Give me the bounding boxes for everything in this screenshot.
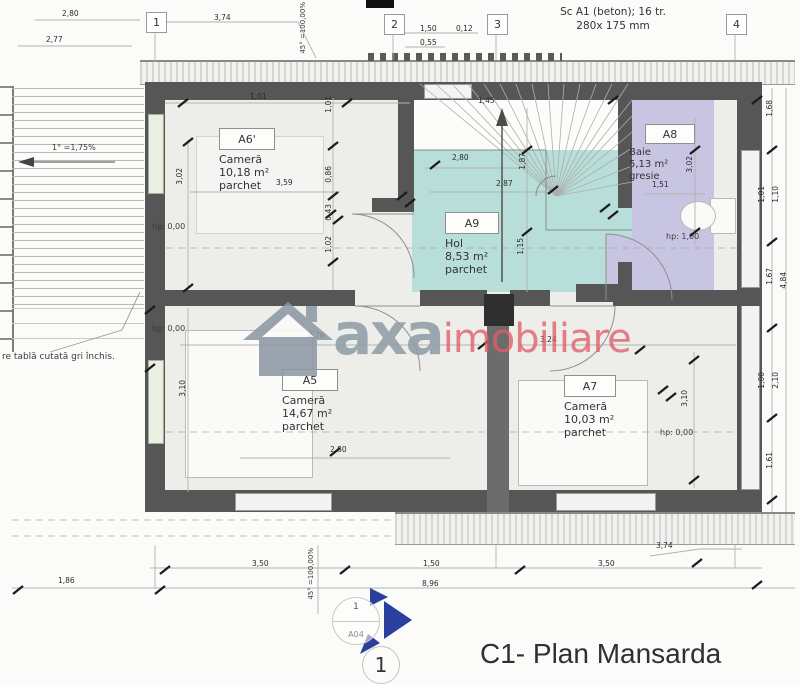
dimension-label: 2,10 [772, 372, 780, 389]
dimension-label: 1,10 [772, 186, 780, 203]
dimension-label: 1,87 [519, 153, 527, 170]
room-finish: parchet [445, 263, 499, 276]
height-label: hp: 0,00 [152, 222, 185, 231]
grid-marker-label: 3 [494, 18, 501, 31]
dimension-label: 2,80 [452, 154, 469, 162]
plan-title: C1- Plan Mansarda [480, 638, 721, 670]
room-id: A7 [583, 380, 598, 393]
linework-layer [0, 0, 800, 685]
dimension-label: 3,10 [179, 380, 187, 397]
room-id-box: A6' [219, 128, 275, 150]
dimension-label: 3,02 [686, 156, 694, 173]
room-id: A9 [465, 217, 480, 230]
dimension-label: 1,01 [325, 96, 333, 113]
dimension-label: 3,10 [681, 390, 689, 407]
dimension-label: 3,74 [656, 542, 673, 550]
room-finish: parchet [564, 426, 616, 439]
dimension-label: 1,02 [325, 236, 333, 253]
height-label: hp: 1,00 [666, 232, 699, 241]
room-area: 10,03 m² [564, 413, 616, 426]
dimension-label: 1,01 [758, 186, 766, 203]
room-id: A5 [303, 374, 318, 387]
dimension-label: 1,15 [517, 238, 525, 255]
room-name: Cameră [564, 400, 616, 413]
floor-plan-canvas: 1 2 3 4 Sc A1 (beton); 16 tr. 280x 175 m… [0, 0, 800, 685]
room-area: 14,67 m² [282, 407, 338, 420]
dimension-label: 0,86 [325, 166, 333, 183]
room-name: Cameră [219, 153, 275, 166]
stair-specification-note: Sc A1 (beton); 16 tr. 280x 175 mm [508, 5, 718, 33]
dimension-label: 0,55 [420, 39, 437, 47]
room-id: A6' [238, 133, 256, 146]
height-label: hp: 0,00 [152, 324, 185, 333]
material-note: re tablă cutată gri închis. [2, 352, 115, 362]
dimension-label: 1,61 [766, 452, 774, 469]
section-marker-number: 1 [333, 602, 379, 612]
room-label-a6: A6' Cameră 10,18 m² parchet [219, 128, 275, 192]
stair-note-line2: 280x 175 mm [508, 19, 718, 33]
dimension-label: 1,00 [758, 372, 766, 389]
dimension-label: 1,50 [420, 25, 437, 33]
dimension-label: 1,68 [766, 100, 774, 117]
section-marker: 1 A04 [332, 597, 380, 645]
dimension-label: 8,96 [422, 580, 439, 588]
room-finish: parchet [219, 179, 275, 192]
room-area: 10,18 m² [219, 166, 275, 179]
detail-number-circle: 1 [362, 646, 400, 684]
dimension-label: 1,45 [478, 97, 495, 105]
slope-label: 45° =100,00% [307, 548, 315, 600]
room-id-box: A7 [564, 375, 616, 397]
dimension-label: 0,12 [456, 25, 473, 33]
room-id-box: A5 [282, 369, 338, 391]
slope-label: 1° =1,75% [52, 143, 96, 152]
dimension-label: 3,02 [176, 168, 184, 185]
dimension-label: 3,59 [276, 179, 293, 187]
dimension-label: 0,43 [325, 204, 333, 221]
grid-marker-1: 1 [146, 12, 167, 33]
grid-marker-2: 2 [384, 14, 405, 35]
dimension-label: 1,01 [250, 93, 267, 101]
dimension-label: 4,84 [780, 272, 788, 289]
slope-label: 45° =100,00% [299, 2, 307, 54]
stair-note-line1: Sc A1 (beton); 16 tr. [508, 5, 718, 19]
dimension-label: 3,74 [214, 14, 231, 22]
grid-marker-4: 4 [726, 14, 747, 35]
grid-marker-label: 2 [391, 18, 398, 31]
grid-marker-3: 3 [487, 14, 508, 35]
room-label-a7: A7 Cameră 10,03 m² parchet [564, 375, 616, 439]
grid-marker-label: 1 [153, 16, 160, 29]
room-area: 8,53 m² [445, 250, 499, 263]
room-finish: parchet [282, 420, 338, 433]
dimension-label: 2,77 [46, 36, 63, 44]
dimension-label: 1,50 [423, 560, 440, 568]
room-id: A8 [663, 128, 678, 141]
room-label-a8: A8 Baie 5,13 m² gresie [629, 124, 695, 183]
dimension-label: 1,86 [58, 577, 75, 585]
room-label-a5: A5 Cameră 14,67 m² parchet [282, 369, 338, 433]
dimension-label: 2,80 [330, 446, 347, 454]
section-marker-sheet: A04 [333, 630, 379, 639]
dimension-label: 2,87 [496, 180, 513, 188]
room-id-box: A9 [445, 212, 499, 234]
dimension-label: 3,50 [598, 560, 615, 568]
dimension-label: 1,67 [766, 268, 774, 285]
room-label-a9: A9 Hol 8,53 m² parchet [445, 212, 499, 276]
room-name: Hol [445, 237, 499, 250]
section-marker-divider [333, 621, 379, 622]
dimension-label: 3,50 [252, 560, 269, 568]
height-label: hp: 0,00 [660, 428, 693, 437]
dimension-label: 3,24 [540, 336, 557, 344]
dimension-label: 2,80 [62, 10, 79, 18]
room-id-box: A8 [645, 124, 695, 144]
dimension-label: 1,51 [652, 181, 669, 189]
grid-marker-label: 4 [733, 18, 740, 31]
detail-number: 1 [375, 653, 388, 677]
dimension-label: 4,76 [308, 332, 325, 340]
room-name: Cameră [282, 394, 338, 407]
